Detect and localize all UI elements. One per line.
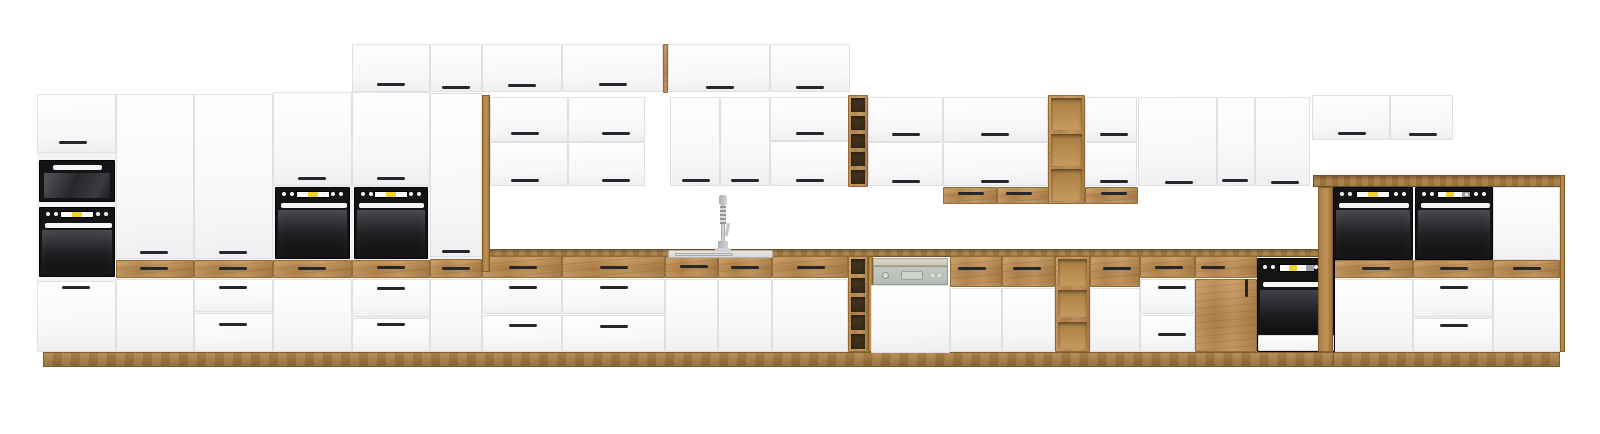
oven-tower-glass [42,230,112,274]
oven-mid-right-handle-bar [359,203,424,208]
base-4-left-door [950,288,1002,352]
top-box-3 [668,44,770,92]
base-3-door [772,279,848,352]
knob-dot [938,274,941,277]
cabinet-handle [1440,324,1468,327]
cabinet-handle [892,180,920,183]
cabinet-handle [682,179,710,182]
built-in-microwave [39,160,115,202]
knob-dot [1422,192,1426,196]
cabinet-handle [377,177,405,180]
wine-rack-wall-cell [851,98,865,112]
cabinet-handle [706,86,734,89]
tower-e-oak-drawer [352,260,430,278]
built-in-oven-oven-high-right [1415,187,1493,260]
cabinet-handle [1440,267,1468,270]
base-4-right-door [1002,288,1055,352]
cabinet-handle [377,287,405,290]
base-1-drawer-2 [482,315,562,352]
knob-dot [1348,192,1352,196]
cabinet-handle [958,267,986,270]
base-2-drawer-1 [562,279,665,314]
faucet-lever [725,223,730,236]
cabinet-handle [680,265,708,268]
cabinet-handle [600,286,628,289]
open-shelf-base-cell [1058,290,1087,317]
built-in-oven-oven-tower [39,207,115,277]
base-5-door [1090,288,1140,352]
tower-b-bottom-door [116,279,194,352]
cabinet-handle [140,267,168,270]
cabinet-handle [140,251,168,254]
knob-dot [1385,193,1388,196]
knob-dot [96,212,100,216]
kitchen-product-image [0,0,1600,434]
built-in-oven-oven-mid-left [275,187,350,259]
knob-dot [104,212,108,216]
cabinet-handle [1100,133,1128,136]
cabinet-handle [442,86,470,89]
cabinet-handle [219,251,247,254]
wall-cab-9-door [1217,97,1255,186]
oven-mid-right-glass [357,210,425,256]
cabinet-handle [1409,133,1437,136]
wall-cab-1-upper-door [490,97,568,142]
raised-left-side-panel [1318,187,1333,352]
dishwasher-top-strip [873,258,948,266]
tower-c-drawer-2 [194,313,273,352]
cabinet-handle [219,323,247,326]
oven-high-right-handle-bar [1421,203,1490,208]
cabinet-handle [442,267,470,270]
knob-dot [1394,192,1398,196]
cabinet-handle [731,179,759,182]
under-cabinet-drawer-1a [943,187,997,204]
oven-high-left-handle-bar [1339,203,1409,208]
cabinet-handle [796,132,824,135]
microwave-glass [44,173,110,198]
open-shelf-wall-cell [1051,134,1082,166]
cabinet-handle [1201,266,1225,269]
open-shelf-wall [1048,95,1085,204]
wine-rack-base [848,256,868,352]
knob-dot [1340,192,1344,196]
wall-cab-3-left-door [670,97,720,186]
wine-rack-base-cell [851,315,865,330]
oak-drawer-base-4b [1002,256,1055,287]
wall-cab-3-right-door [720,97,770,186]
dishwasher-power-button [882,272,889,279]
under-cabinet-drawer-2 [1085,187,1138,204]
base-2-drawer-2 [562,315,665,352]
wine-rack-base-cell [851,259,865,274]
cabinet-handle [509,266,537,269]
cabinet-handle [796,86,824,89]
cabinet-handle [602,179,630,182]
plinth-raised [1333,352,1560,367]
cabinet-handle [1103,267,1131,270]
cabinet-handle [442,250,470,253]
wine-rack-base-cell [851,278,865,293]
open-shelf-base-cell [1058,259,1087,286]
knob-dot [339,192,343,196]
wall-cab-8-door [1138,97,1217,186]
knob-dot [1482,192,1486,196]
knob-dot [400,193,403,196]
oak-side-panel-wall [482,95,490,272]
cabinet-handle [219,286,247,289]
knob-dot [409,192,413,196]
oven-high-right-glass [1418,210,1490,257]
cabinet-handle [1271,181,1299,184]
cabinet-handle [1155,266,1183,269]
cabinet-handle [62,286,90,289]
knob-dot [1465,193,1468,196]
cabinet-handle [511,179,539,182]
knob-dot [361,192,365,196]
tower-c-drawer-1 [194,279,273,312]
faucet-spring-coil [720,206,726,224]
cabinet-handle [1013,267,1041,270]
cabinet-handle [1100,180,1128,183]
wine-rack-base-cell [851,334,865,349]
microwave-handle-bar [53,165,102,170]
cabinet-handle [1006,192,1032,195]
knob-dot [87,213,90,216]
knob-dot [331,192,335,196]
knob-dot [1402,192,1406,196]
open-shelf-base [1055,256,1090,352]
cabinet-handle [1362,267,1390,270]
knob-dot [1430,192,1434,196]
base-6-drawer-1 [1140,279,1195,314]
tall-cabinet-top-box [430,44,482,92]
raised-base-1-door [1333,279,1413,352]
knob-dot [369,192,373,196]
cabinet-handle [508,84,536,87]
cabinet-handle [509,324,537,327]
wine-rack-wall-cell [851,170,865,184]
dishwasher-handle-recess [901,271,923,280]
tower-b-door [116,94,194,259]
cabinet-handle [600,266,628,269]
cabinet-handle [1158,333,1186,336]
knob-dot [417,192,421,196]
cabinet-handle [958,192,984,195]
tower-a-bottom-door [37,281,116,352]
sink-cabinet-right-door [718,279,772,352]
open-shelf-base-cell [1058,322,1087,349]
cabinet-handle [797,266,825,269]
raised-mid-white-door [1493,187,1560,260]
tall-cabinet-door [430,93,482,257]
control-display [1279,264,1315,272]
tower-d-door [273,92,352,186]
under-cabinet-drawer-1b [997,187,1050,204]
cabinet-handle [1165,181,1193,184]
cabinet-handle [1338,132,1366,135]
cabinet-handle [59,141,87,144]
wine-rack-wall-cell [851,134,865,148]
cabinet-handle [1222,179,1248,182]
cabinet-handle [509,286,537,289]
sink-bowl-edge [675,253,733,256]
oven-tower-handle-bar [45,223,112,228]
faucet [712,195,734,252]
cabinet-handle [511,132,539,135]
faucet-head [719,195,727,205]
cabinet-handle [731,266,759,269]
base-1-drawer-1 [482,279,562,314]
tower-e-drawer-1 [352,279,430,317]
tower-e-door [352,92,430,186]
knob-dot [54,212,58,216]
raised-base-3-door [1493,279,1560,352]
cabinet-handle [377,266,405,269]
cabinet-handle [981,180,1009,183]
built-in-oven-oven-high-left [1333,187,1413,260]
top-box-4 [770,44,850,92]
dishwasher-furniture-door [871,285,950,353]
knob-dot [1474,192,1478,196]
tower-c-door [194,94,273,259]
plinth-main [43,352,1335,367]
cabinet-handle [1245,279,1248,297]
knob-dot [1263,265,1267,269]
oven-high-left-glass [1336,210,1410,257]
oven-mid-left-glass [278,210,347,256]
faucet-foot [715,248,731,252]
cabinet-handle [298,267,326,270]
oak-drawer-base-4a [950,256,1002,287]
cabinet-handle [1513,267,1541,270]
cabinet-handle [377,323,405,326]
wine-rack-wall-cell [851,152,865,166]
knob-dot [322,193,325,196]
cabinet-handle [377,83,405,86]
knob-dot [931,274,934,277]
cabinet-handle [298,177,326,180]
tall-cabinet-bottom-door [430,279,482,352]
worktop-raised [1313,175,1565,187]
cabinet-handle [219,267,247,270]
cabinet-handle [1101,192,1127,195]
wall-cab-2-upper-door [568,97,645,142]
tower-d-bottom-door [273,279,352,352]
cabinet-handle [892,133,920,136]
cabinet-handle [796,179,824,182]
built-in-oven-oven-mid-right [354,187,428,259]
cabinet-handle [1440,286,1468,289]
wine-rack-wall [848,95,868,187]
cabinet-handle [599,83,627,86]
cabinet-handle [981,133,1009,136]
open-shelf-wall-cell [1051,98,1082,130]
knob-dot [46,212,50,216]
cabinet-handle [1158,286,1186,289]
knob-dot [1271,265,1275,269]
sink-cabinet-left-door [665,279,718,352]
open-shelf-wall-cell [1051,169,1082,201]
built-in-dishwasher [871,258,950,353]
wine-rack-wall-cell [851,116,865,130]
wall-cab-10-door [1255,97,1310,186]
oak-drawer-base-5 [1090,256,1140,287]
raised-base-2-drawer-1 [1413,279,1493,317]
knob-dot [290,192,294,196]
raised-right-side-panel [1560,175,1565,352]
oven-mid-left-handle-bar [281,203,347,208]
dishwasher-control-panel [873,266,948,285]
knob-dot [282,192,286,196]
cabinet-handle [602,132,630,135]
wine-rack-base-cell [851,297,865,312]
tower-a-top-door [37,94,116,153]
cabinet-handle [600,325,628,328]
